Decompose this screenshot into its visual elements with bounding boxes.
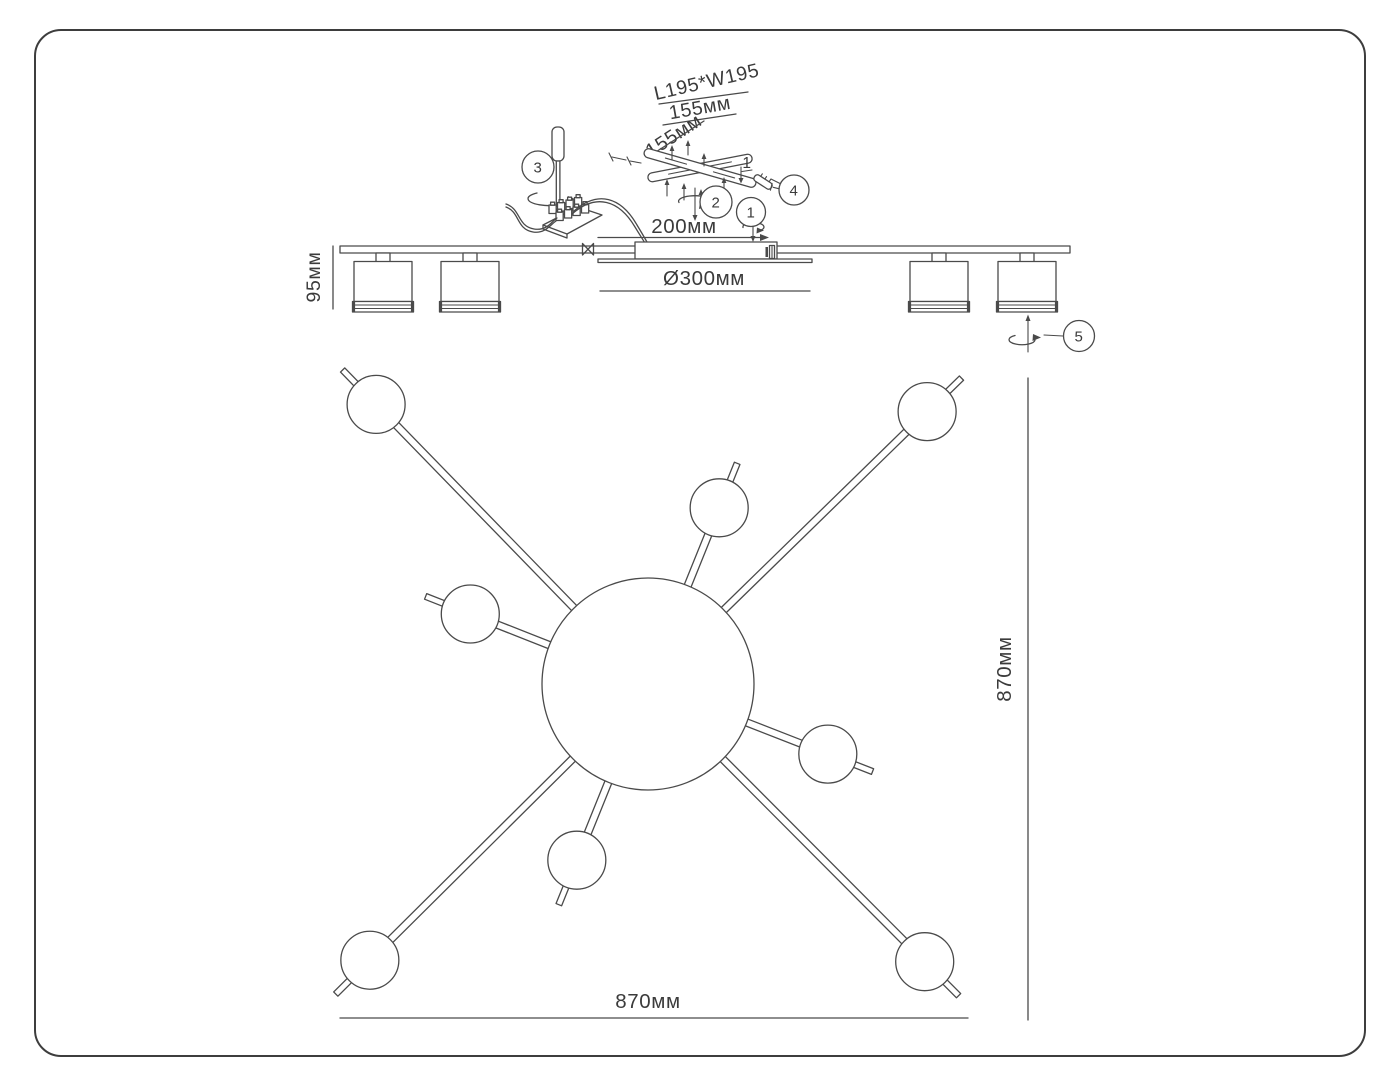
plan-width-label: 870мм xyxy=(615,990,680,1013)
head-ring xyxy=(997,302,1058,313)
terminal-screw-top xyxy=(558,209,562,212)
canopy-plan xyxy=(542,578,754,790)
head-ring-end xyxy=(353,302,356,313)
terminal-screw-top xyxy=(568,197,572,200)
terminal-screw xyxy=(565,210,572,219)
callout-5-number: 5 xyxy=(1075,328,1084,345)
terminal-screw-top xyxy=(575,204,579,207)
head-body xyxy=(354,262,412,302)
lamp-head-side xyxy=(353,253,414,312)
lamp-head-side xyxy=(440,253,501,312)
head-body xyxy=(910,262,968,302)
head-ring-end xyxy=(440,302,443,313)
head-ring xyxy=(353,302,414,313)
lamp-sphere xyxy=(341,931,399,989)
head-ring xyxy=(909,302,970,313)
head-ring-end xyxy=(909,302,912,313)
terminal-screw xyxy=(556,212,563,221)
head-ring-end xyxy=(411,302,414,313)
callout-1: 1 xyxy=(737,198,766,227)
terminal-screw-top xyxy=(576,195,580,198)
lamp-sphere xyxy=(347,375,405,433)
lamp-head-side xyxy=(997,253,1058,312)
head-body xyxy=(441,262,499,302)
head-mount-tab xyxy=(932,253,946,262)
lock-screw-detail xyxy=(766,247,769,257)
lamp-sphere xyxy=(896,933,954,991)
head-ring-end xyxy=(967,302,970,313)
height-dimension-label: 95мм xyxy=(303,252,325,303)
screw-item-label: 1 xyxy=(742,155,751,172)
head-mount-tab xyxy=(376,253,390,262)
lamp-head-side xyxy=(909,253,970,312)
canopy-length-label: 200мм xyxy=(651,215,716,238)
installation-diagram: L195*W195 155мм 155мм xyxy=(0,0,1400,1088)
terminal-screw-top xyxy=(551,202,555,205)
head-body xyxy=(998,262,1056,302)
head-ring-end xyxy=(1055,302,1058,313)
lamp-sphere xyxy=(548,831,606,889)
lamp-sphere xyxy=(690,479,748,537)
head-mount-tab xyxy=(463,253,477,262)
lamp-sphere xyxy=(898,383,956,441)
plan-height-label: 870мм xyxy=(993,636,1016,701)
terminal-screw-top xyxy=(566,207,570,210)
lamp-sphere xyxy=(441,585,499,643)
canopy-diameter-label: Ø300мм xyxy=(663,267,745,290)
head-ring-end xyxy=(997,302,1000,313)
callout-4-number: 4 xyxy=(790,182,799,199)
head-ring xyxy=(440,302,501,313)
head-ring-end xyxy=(498,302,501,313)
callout-1-number: 1 xyxy=(747,204,756,221)
callout-3: 3 xyxy=(522,151,554,183)
callout-2-number: 2 xyxy=(712,194,721,211)
callout-2: 2 xyxy=(700,186,732,218)
head-mount-tab xyxy=(1020,253,1034,262)
drawing-frame xyxy=(35,30,1365,1056)
lamp-sphere xyxy=(799,725,857,783)
terminal-screw-top xyxy=(559,200,563,203)
terminal-screw xyxy=(549,205,556,214)
callout-3-number: 3 xyxy=(534,159,543,176)
